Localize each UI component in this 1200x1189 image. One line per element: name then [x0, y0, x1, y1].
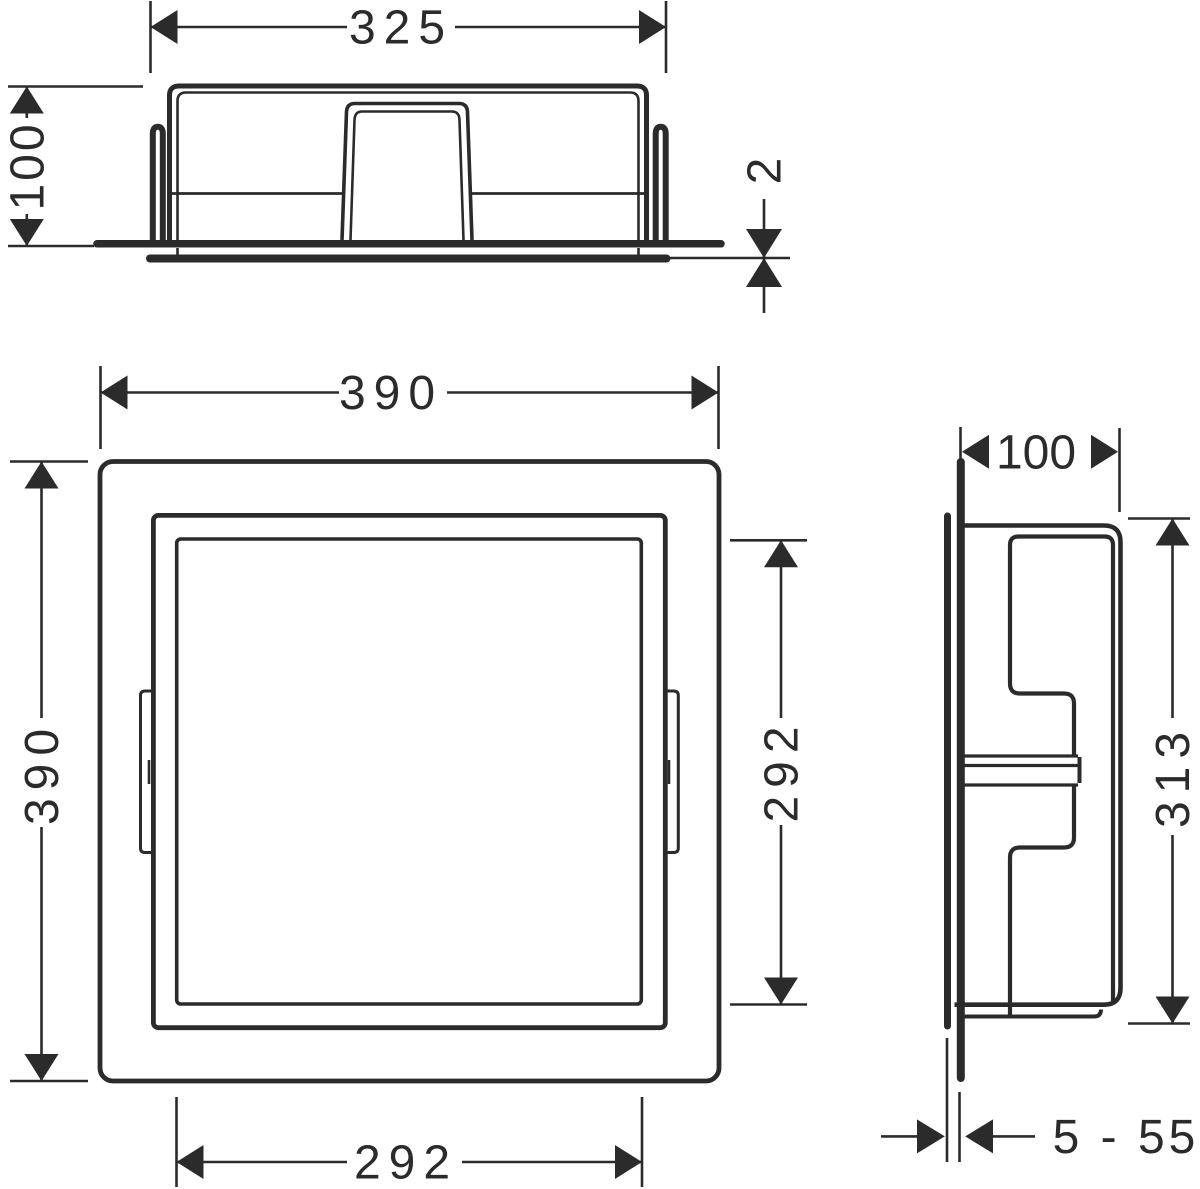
svg-text:2: 2 — [739, 150, 792, 185]
svg-text:390: 390 — [16, 721, 69, 825]
svg-text:325: 325 — [349, 2, 453, 55]
svg-text:100: 100 — [1, 121, 54, 210]
svg-text:292: 292 — [354, 1137, 458, 1189]
svg-text:313: 313 — [1147, 724, 1200, 828]
svg-text:5 - 55: 5 - 55 — [1053, 1111, 1200, 1164]
svg-text:292: 292 — [756, 718, 809, 822]
svg-text:100: 100 — [996, 427, 1076, 480]
svg-text:390: 390 — [339, 367, 443, 420]
